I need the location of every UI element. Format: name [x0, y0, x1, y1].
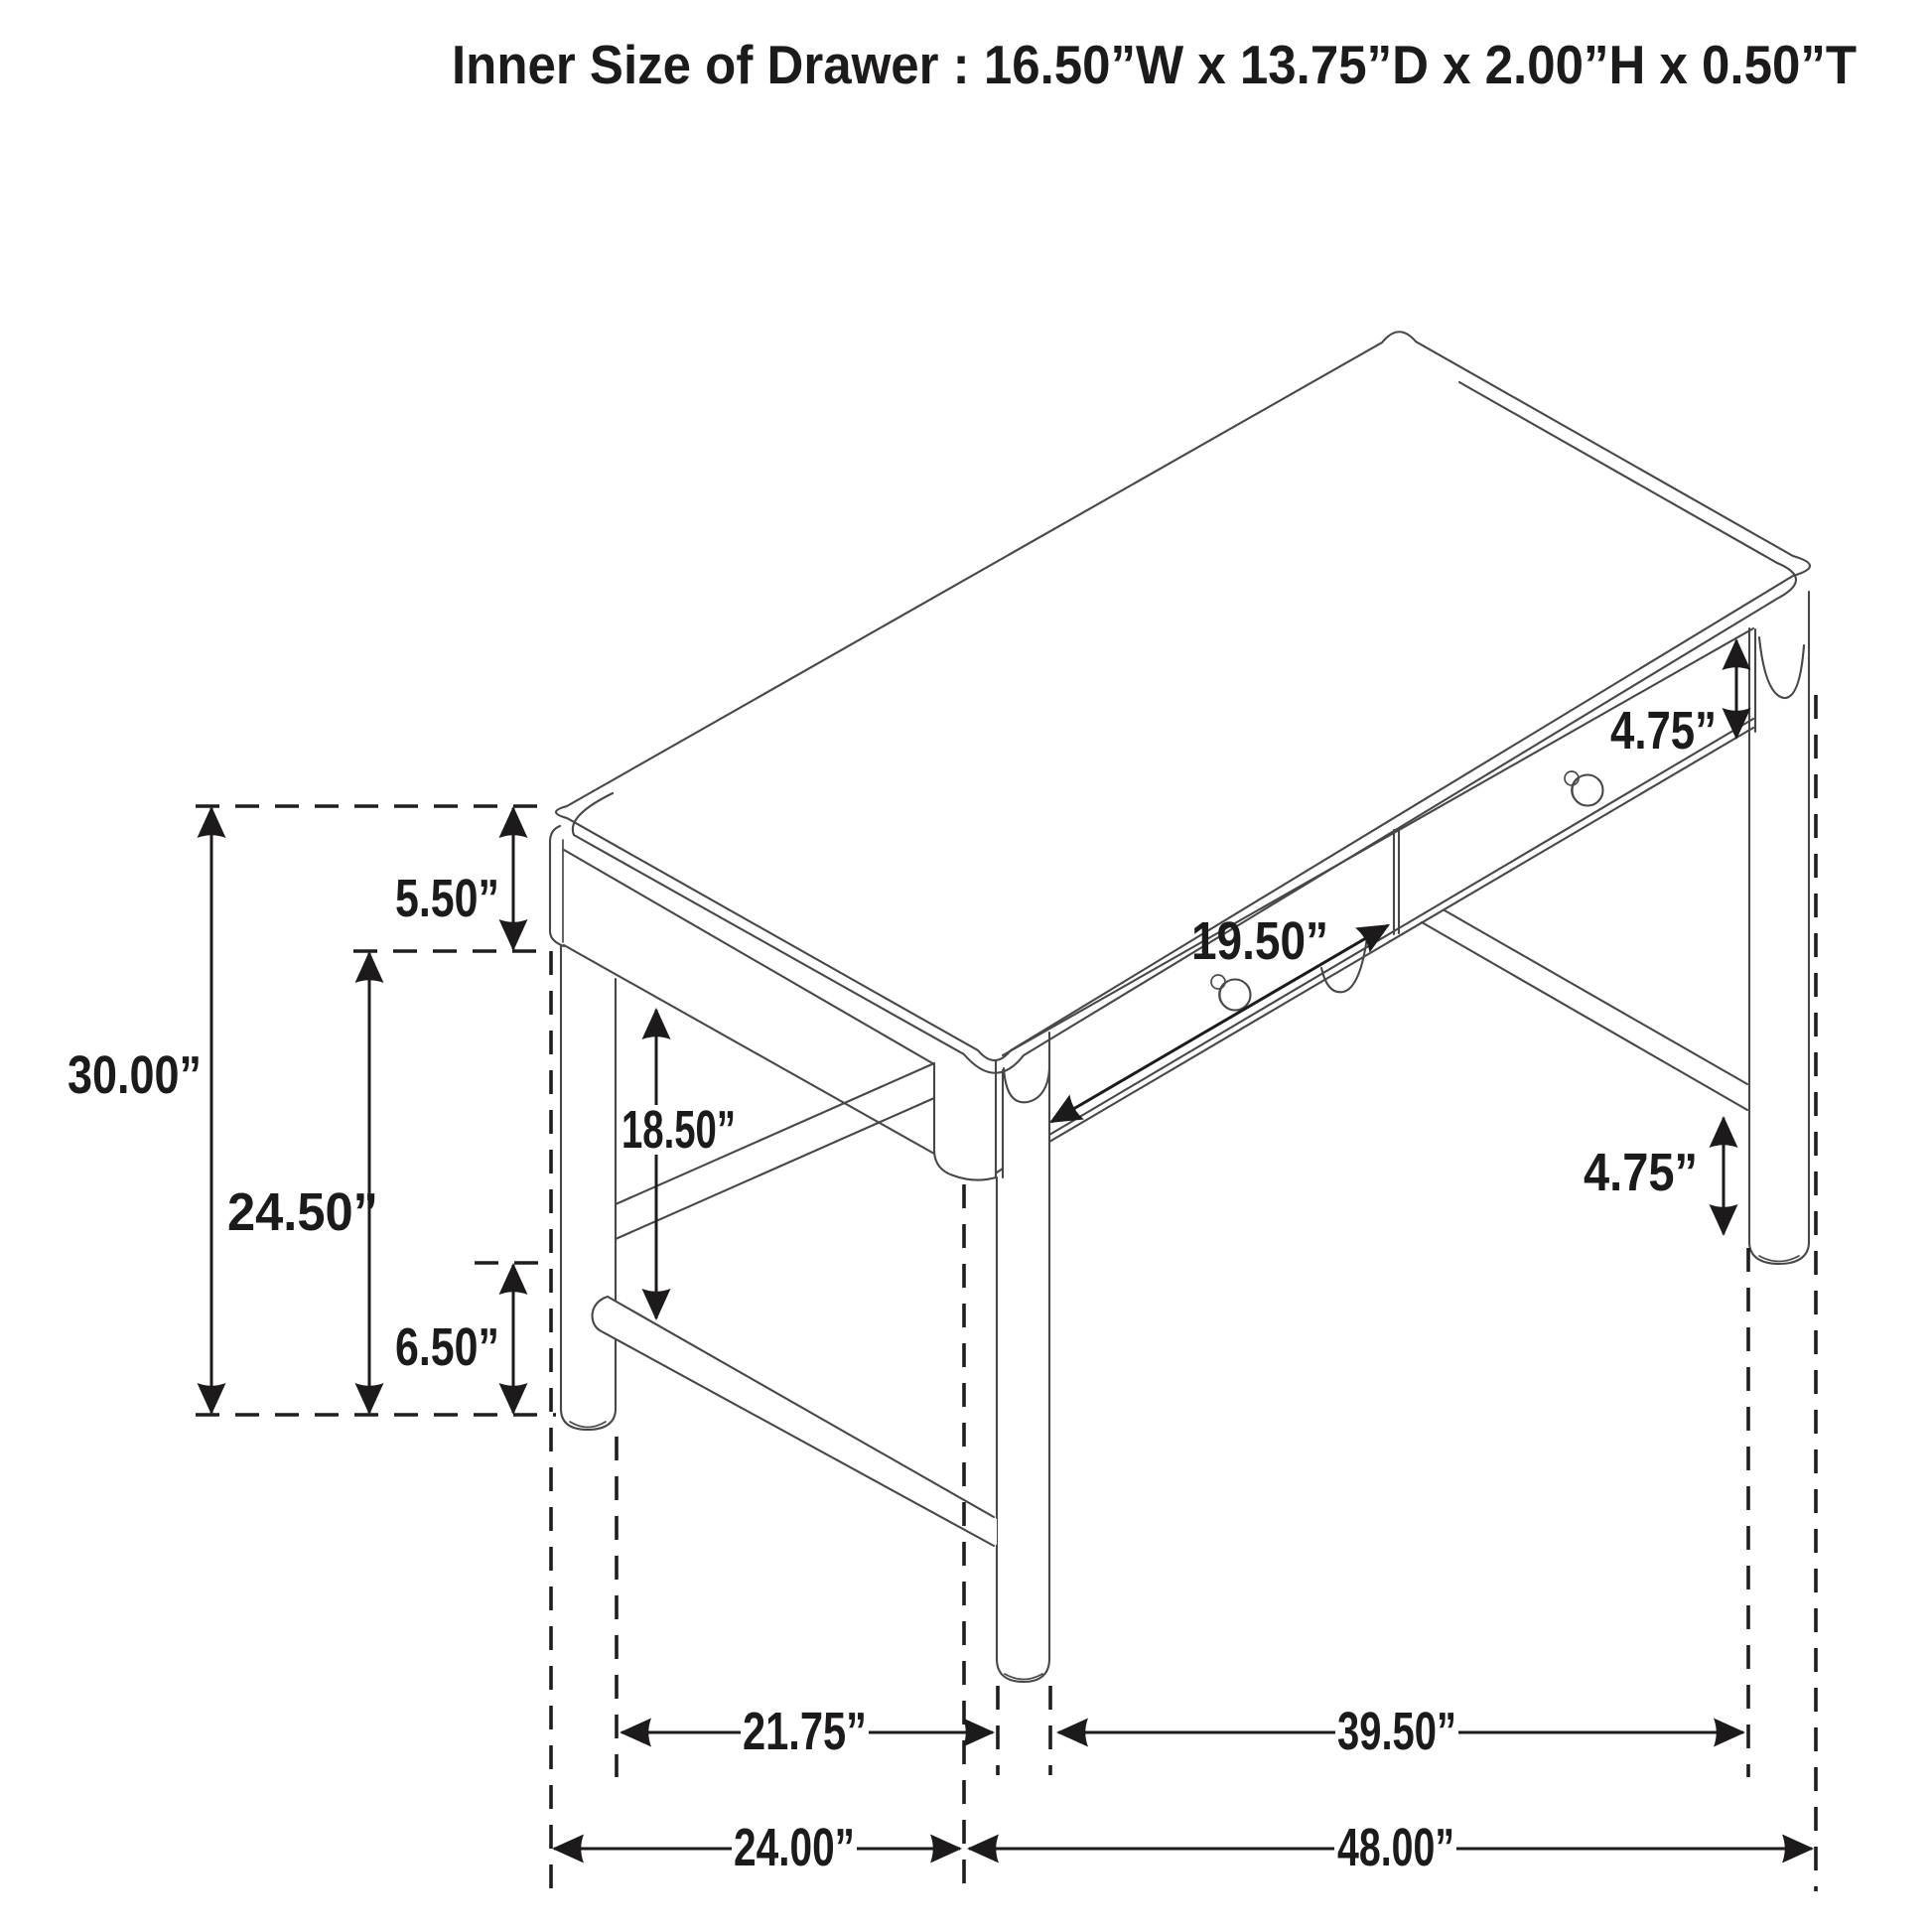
svg-text:39.50”: 39.50” — [1337, 1702, 1456, 1761]
svg-text:48.00”: 48.00” — [1337, 1818, 1454, 1877]
svg-text:21.75”: 21.75” — [743, 1702, 867, 1761]
svg-text:24.50”: 24.50” — [227, 1182, 378, 1242]
svg-text:5.50”: 5.50” — [395, 869, 499, 928]
svg-text:24.00”: 24.00” — [734, 1818, 855, 1877]
svg-text:Inner Size of Drawer : 16.50”W: Inner Size of Drawer : 16.50”W x 13.75”D… — [452, 34, 1857, 95]
svg-text:6.50”: 6.50” — [395, 1317, 499, 1377]
svg-text:30.00”: 30.00” — [68, 1045, 202, 1105]
svg-text:4.75”: 4.75” — [1610, 701, 1717, 760]
svg-text:18.50”: 18.50” — [621, 1100, 736, 1160]
svg-text:4.75”: 4.75” — [1584, 1143, 1698, 1202]
svg-text:19.50”: 19.50” — [1191, 911, 1328, 971]
